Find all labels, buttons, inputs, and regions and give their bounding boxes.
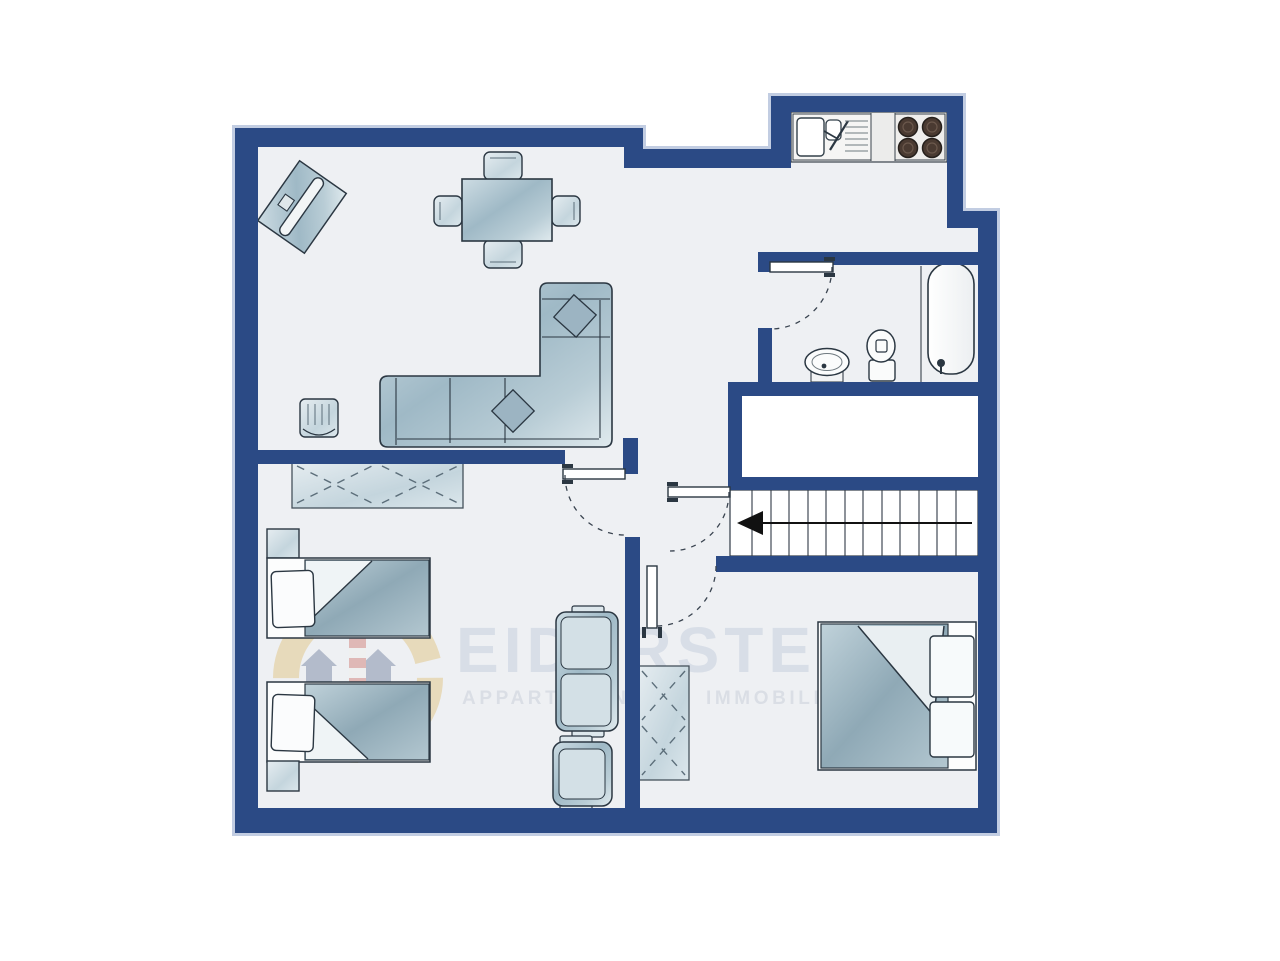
- wall-void-left: [728, 382, 742, 490]
- wall-step-horizontal: [624, 149, 791, 168]
- floorplan-drawing: EIDERSTEDT APPARTEMENTS IMMOBILIEN: [0, 0, 1280, 961]
- nightstand: [267, 529, 299, 558]
- rattan-chair: [300, 399, 338, 437]
- wardrobe-horizontal: [292, 461, 463, 508]
- single-bed-1: [267, 558, 430, 638]
- wall-bath-bottom: [742, 382, 978, 396]
- wall-bottom-outer: [235, 808, 997, 833]
- bathtub: [928, 263, 974, 374]
- pillow: [930, 636, 974, 697]
- wall-top-left: [235, 128, 643, 147]
- stove: [895, 114, 945, 160]
- pillow: [271, 570, 315, 627]
- floorplan-page: EIDERSTEDT APPARTEMENTS IMMOBILIEN: [0, 0, 1280, 961]
- dining-chair: [552, 196, 580, 226]
- wall-kitchen-right: [947, 96, 963, 212]
- kitchen-counter: [791, 112, 947, 162]
- toilet: [867, 330, 895, 381]
- wall-kitchen-top: [771, 96, 963, 112]
- wall-bedroom-hall: [625, 537, 640, 812]
- single-bed-2: [267, 682, 430, 762]
- armchair: [553, 736, 612, 811]
- wall-left-outer: [235, 128, 258, 833]
- washbasin: [805, 349, 849, 383]
- kitchen-sink: [793, 114, 871, 160]
- wardrobe-vertical: [638, 666, 689, 780]
- wall-void-bottom: [728, 477, 978, 490]
- pillow: [271, 694, 315, 751]
- void-area: [742, 396, 978, 477]
- nightstand: [267, 761, 299, 791]
- wall-stairs-bottom: [716, 556, 978, 572]
- dining-table: [462, 179, 552, 241]
- wall-livingroom-bedroom: [245, 450, 565, 464]
- wall-right-outer: [978, 211, 997, 833]
- dining-chair: [434, 196, 462, 226]
- pillow: [930, 702, 974, 757]
- loveseat: [556, 606, 618, 737]
- double-bed: [818, 622, 976, 770]
- dining-chair: [484, 152, 522, 180]
- stairs: [730, 490, 978, 556]
- dining-chair: [484, 240, 522, 268]
